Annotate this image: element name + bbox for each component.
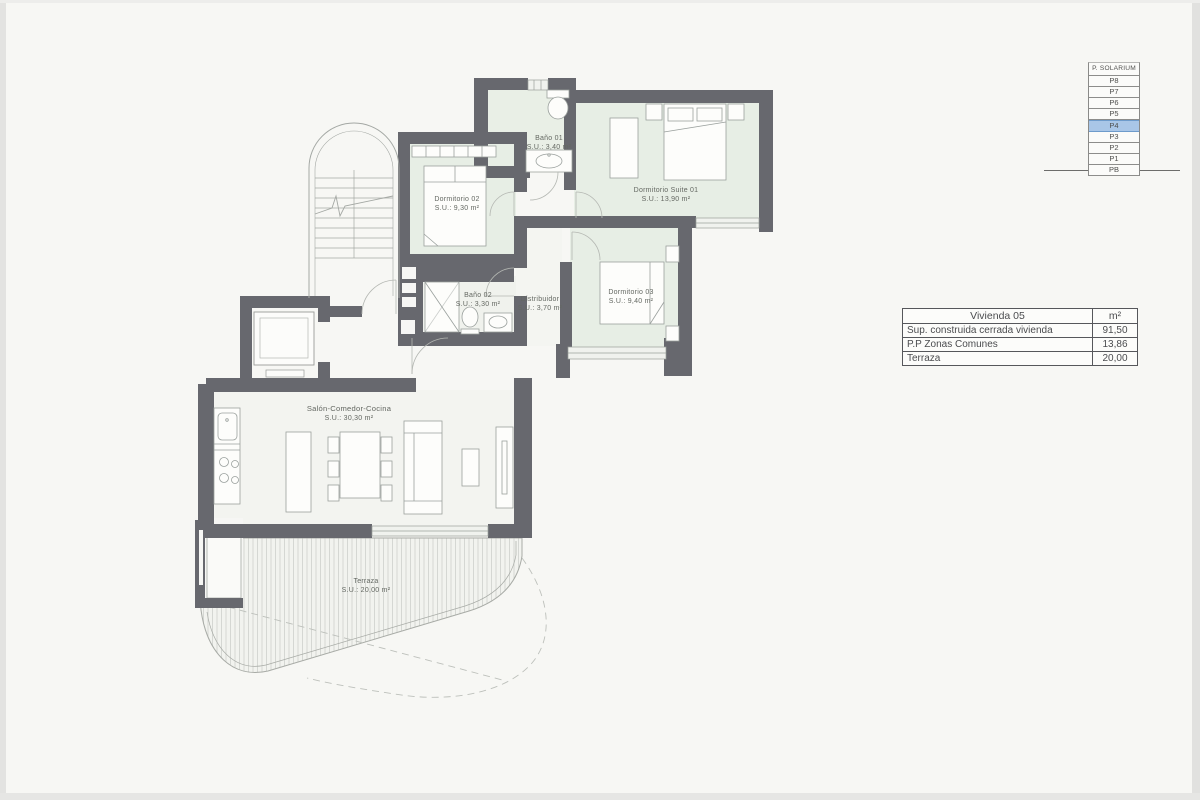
label-suite01: Dormitorio Suite 01: [634, 187, 699, 194]
table-row-terrace: Terraza 20,00: [903, 352, 1137, 365]
shower-icon-bano02: [425, 282, 459, 332]
door-bano01: [530, 172, 558, 200]
label-salon: Salón-Comedor-Cocina: [307, 404, 392, 413]
label-dorm02-area: S.U.: 9,30 m²: [435, 205, 480, 212]
label-bano02: Baño 02: [464, 292, 492, 299]
floor-row-p1: P1: [1089, 154, 1139, 165]
label-bano02-area: S.U.: 3,30 m²: [456, 301, 501, 308]
floor-row-p5: P5: [1089, 109, 1139, 120]
dwelling-title: Vivienda 05: [903, 309, 1093, 323]
terrace-deck: [197, 538, 522, 672]
floor-plan-page: { "floor_selector": { "header": "P. SOLA…: [0, 0, 1200, 800]
sink-icon-bano01: [526, 150, 572, 172]
floor-row-p2: P2: [1089, 143, 1139, 154]
table-row-common-zones: P.P Zonas Comunes 13,86: [903, 338, 1137, 352]
coffee-table-icon: [462, 449, 479, 486]
ground-line-left: [1044, 170, 1088, 171]
floor-row-p3: P3: [1089, 132, 1139, 143]
toilet-icon-bano01: [547, 90, 569, 119]
stair-steps: [315, 170, 393, 258]
label-distribuidor: Distribuidor: [521, 296, 560, 303]
label-distribuidor-area: S.U.: 3,70 m²: [518, 305, 563, 312]
label-salon-area: S.U.: 30,30 m²: [325, 415, 374, 422]
row-label: Sup. construida cerrada vivienda: [903, 324, 1093, 337]
sink-icon-bano02: [484, 313, 512, 332]
wardrobe-icon-suite: [610, 118, 638, 178]
dining-table-icon: [328, 432, 392, 501]
areas-table: Vivienda 05 m² Sup. construida cerrada v…: [902, 308, 1138, 366]
label-bano01-area: S.U.: 3,40 m²: [527, 144, 572, 151]
areas-table-header: Vivienda 05 m²: [903, 309, 1137, 324]
label-dorm03-area: S.U.: 9,40 m²: [609, 298, 654, 305]
row-value: 13,86: [1093, 338, 1137, 351]
ground-line-right: [1138, 170, 1180, 171]
sofa-icon: [404, 421, 442, 514]
entry-door: [362, 280, 396, 314]
staircase: [309, 123, 399, 298]
floor-row-p8: P8: [1089, 76, 1139, 87]
kitchen-island-icon: [286, 432, 311, 512]
terrace-area: [197, 538, 546, 697]
floor-plan-drawing: Baño 01 S.U.: 3,40 m² Dormitorio 02 S.U.…: [0, 0, 1200, 800]
row-value: 91,50: [1093, 324, 1137, 337]
window-salon-terrace: [372, 526, 488, 536]
label-bano01: Baño 01: [535, 135, 563, 142]
floor-row-pb: PB: [1089, 165, 1139, 176]
label-terraza-area: S.U.: 20,00 m²: [342, 587, 391, 594]
label-dorm03: Dormitorio 03: [608, 289, 653, 296]
table-row-built-area: Sup. construida cerrada vivienda 91,50: [903, 324, 1137, 338]
kitchen-counter-icon: [214, 408, 240, 504]
window-bath-top: [528, 80, 548, 90]
row-value: 20,00: [1093, 352, 1137, 365]
floor-row-p4-selected: P4: [1089, 120, 1139, 132]
floor-row-p6: P6: [1089, 98, 1139, 109]
floor-selector-header: P. SOLARIUM: [1089, 63, 1139, 76]
window-suite-bottom: [696, 218, 759, 228]
row-label: Terraza: [903, 352, 1093, 365]
label-suite01-area: S.U.: 13,90 m²: [642, 196, 691, 203]
elevator: [254, 312, 314, 377]
row-label: P.P Zonas Comunes: [903, 338, 1093, 351]
floor-selector: P. SOLARIUM P8 P7 P6 P5 P4 P3 P2 P1 PB: [1088, 62, 1140, 176]
window-dorm03-bottom: [568, 347, 666, 359]
floor-row-p7: P7: [1089, 87, 1139, 98]
tv-unit-icon: [496, 427, 513, 508]
label-dorm02: Dormitorio 02: [434, 196, 479, 203]
toilet-icon-bano02: [461, 307, 479, 334]
unit-header: m²: [1093, 309, 1137, 323]
closet-icon-dorm02: [412, 146, 496, 157]
label-terraza: Terraza: [353, 578, 378, 585]
